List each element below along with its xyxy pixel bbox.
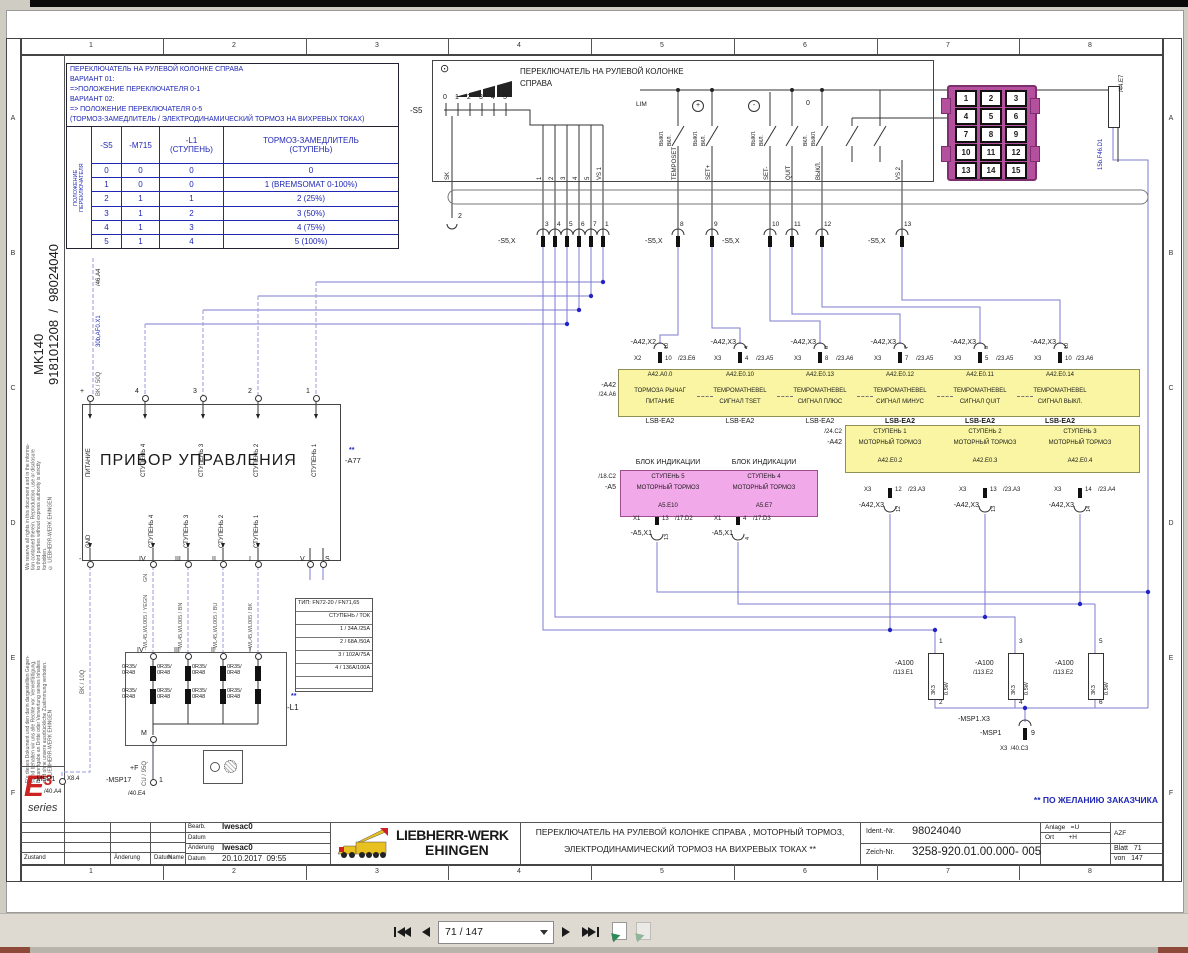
switch-ref: -S5: [410, 107, 422, 116]
channel-line1: СТУПЕНЬ 1: [845, 429, 935, 436]
plug-name: X2: [634, 356, 641, 363]
switch-box: [432, 60, 934, 182]
anlage-label: Anlage =U: [1045, 824, 1079, 831]
schematic-viewer-window: 1 2 3 4 5 6 7 8 1 2 3 4 5 6 7 8 A B C D …: [0, 0, 1188, 953]
connector-pin-grid: 1 2 3 4 5 6 7 8 9 10 11 12 13 14 15: [954, 90, 1028, 174]
datum-value: 20.10.2017 09:55: [222, 855, 287, 864]
table-cell: 0: [91, 163, 121, 177]
pin-label: +: [80, 388, 84, 396]
von-label: von 147: [1114, 855, 1143, 863]
ident-number: 98024040: [912, 825, 961, 837]
plug-pin-rot: 10: [664, 337, 670, 349]
ground-bolt-icon: [224, 760, 237, 773]
plug-pin: 10: [665, 356, 672, 363]
drawing-number: 3258-920.01.00.000- 005: [912, 846, 1041, 859]
next-page-button[interactable]: [558, 922, 574, 942]
bus-label: LSB-EA2: [620, 418, 700, 426]
rev-name: Name: [168, 855, 184, 862]
channel-line2: МОТОРНЫЙ ТОРМОЗ: [845, 440, 935, 447]
plug-pin: 13: [662, 516, 669, 523]
model-label: MK140: [32, 235, 47, 375]
previous-page-icon: [422, 927, 430, 937]
msp1-dev: -MSP1: [980, 730, 1001, 738]
channel-line1: ТОРМОЗА РЫЧАГ: [620, 388, 700, 395]
msp1x3-conn: -MSP1.X3: [958, 716, 990, 724]
conn-label: -A5,X1: [608, 530, 652, 538]
fuse-wire-name: 15b.F46.D1: [1098, 112, 1105, 170]
page-number-combobox[interactable]: 71 / 147: [438, 921, 554, 944]
a100-power: 0.5W: [944, 657, 950, 695]
type-table: ТИП: FN72-20 / FN71,65 СТУПЕНЬ / ТОК 1 /…: [295, 598, 373, 692]
last-page-button[interactable]: [579, 922, 601, 942]
fuse-symbol: [1108, 86, 1120, 128]
next-view-button[interactable]: [632, 920, 654, 944]
channel-line1: СТУПЕНЬ 5: [623, 474, 713, 481]
wire-xref: /46.A4: [96, 260, 103, 286]
wire-name: -WL45,WL005 / YEGN: [143, 578, 149, 650]
copyright-english: We reserve all rights in this document a…: [26, 360, 54, 570]
pin-number: 3: [545, 221, 549, 228]
conn-label: -A42,X2: [612, 339, 656, 347]
e3-logo-series: series: [28, 802, 57, 814]
liebherr-crane-logo: [334, 824, 392, 862]
a42m-ref: -A42: [822, 439, 842, 447]
plus-symbol: +: [692, 100, 704, 112]
lim-label: LIM: [636, 101, 647, 108]
fuse-xref: /44.E7: [1119, 58, 1126, 92]
channel-addr: A42.A0.0: [620, 372, 700, 379]
msp1-pin: X8.4: [67, 776, 79, 783]
msp17-ref: -MSP17: [106, 777, 131, 785]
terminal-label: IV: [137, 647, 144, 655]
a100-value: 3K3: [931, 657, 937, 695]
sheet-title-2: ЭЛЕКТРОДИНАМИЧЕСКИЙ ТОРМОЗ НА ВИХРЕВЫХ Т…: [524, 845, 856, 855]
off-label: ВЫКЛ.: [660, 114, 666, 146]
plus-f-label: +F: [130, 765, 138, 773]
a100-ref: -A100: [895, 660, 914, 668]
a100-xref: /113.E1: [893, 670, 913, 677]
previous-page-button[interactable]: [418, 922, 434, 942]
pin2-label: 2: [458, 213, 462, 221]
a5-ref: -A5: [596, 484, 616, 492]
aend-value: lwesac0: [222, 844, 253, 853]
wire-name: 30b,AF0.X1: [96, 289, 103, 347]
plug-name: X3: [864, 487, 871, 494]
variant-table-side-label: ПОЛОЖЕНИЕ ПЕРЕКЛЮЧАТЕЛЯ: [67, 127, 91, 248]
window-bottom-edge: [0, 947, 1188, 953]
zeich-label: Zeich-Nr.: [866, 849, 894, 857]
azf-label: AZF: [1114, 830, 1126, 837]
pin-function: ПИТАНИЕ: [86, 417, 93, 477]
channel-line2: ПИТАНИЕ: [620, 399, 700, 406]
ground-symbol-box: [203, 750, 243, 784]
ort-label: Ort +H: [1045, 834, 1077, 841]
bearb-value: lwesac0: [222, 823, 253, 832]
terminal-label: SK: [445, 150, 452, 180]
wire-spec: BK / 10Q: [80, 646, 87, 694]
rev-zustand: Zustand: [24, 855, 46, 862]
connector-pin: 1: [955, 90, 977, 107]
document-number: 918101208 / 98024040: [47, 150, 62, 385]
a42-ref: -A42: [596, 382, 616, 390]
minus-symbol: -: [748, 100, 760, 112]
previous-view-button[interactable]: [608, 920, 630, 944]
page-number-value: 71 / 147: [445, 926, 483, 938]
ground-screw-icon: [210, 762, 220, 772]
channel-addr: A5.E10: [623, 503, 713, 510]
conn-label: -A42,X3: [840, 502, 884, 510]
copyright-german: Für dieses Dokument und den darin darges…: [26, 588, 54, 783]
first-page-button[interactable]: [391, 922, 413, 942]
switch-title: ПЕРЕКЛЮЧАТЕЛЬ НА РУЛЕВОЙ КОЛОНКЕ: [520, 68, 684, 77]
control-unit-ref: -A77: [345, 457, 361, 465]
resistor-value: 0R35/ 0R48: [122, 664, 137, 676]
channel-addr: A42.E0.2: [845, 458, 935, 465]
connector-tab: [941, 98, 951, 114]
terminal-circle: [87, 395, 94, 402]
wire-spec: BK / 50Q: [96, 350, 103, 396]
type-table-row: ТИП: FN72-20 / FN71,65: [296, 599, 372, 612]
plug-xref: /23.A3: [908, 487, 925, 494]
plug-name: X1: [633, 516, 640, 523]
m-terminal-label: M: [141, 730, 147, 738]
blatt-label: Blatt 71: [1114, 845, 1142, 853]
msp1-xref: /40.A4: [44, 789, 61, 796]
rev-aenderung: Änderung: [114, 855, 140, 862]
first-page-icon: [394, 927, 396, 937]
variant-info-box: ПЕРЕКЛЮЧАТЕЛЬ НА РУЛЕВОЙ КОЛОНКЕ СПРАВА …: [66, 63, 399, 127]
switch-symbol-icon: ⊙: [440, 63, 449, 75]
a5-xref: /18.C2: [590, 474, 616, 481]
control-unit-box: [82, 404, 341, 561]
s5x-label: -S5,X: [498, 238, 516, 246]
indication-header: БЛОК ИНДИКАЦИИ: [623, 459, 713, 467]
msp17-xref: /40.E4: [128, 791, 145, 798]
zero-label: 0: [806, 100, 810, 108]
plug-pin: 12: [895, 487, 902, 494]
company-name-2: EHINGEN: [425, 843, 489, 859]
customer-note: ** ПО ЖЕЛАНИЮ ЗАКАЗЧИКА: [980, 796, 1158, 806]
customer-option-stars: **: [291, 693, 296, 701]
variant-table: ПОЛОЖЕНИЕ ПЕРЕКЛЮЧАТЕЛЯ -S5 -M715 -L1 (С…: [66, 126, 399, 249]
plug-xref: /23.E6: [678, 356, 695, 363]
msp17-pin: 1: [159, 777, 163, 785]
msp1-ref: -MSP1: [34, 776, 55, 784]
col-header: -S5: [91, 127, 121, 163]
info-line: ПЕРЕКЛЮЧАТЕЛЬ НА РУЛЕВОЙ КОЛОНКЕ СПРАВА: [70, 66, 243, 74]
channel-line2: МОТОРНЫЙ ТОРМОЗ: [623, 485, 713, 492]
next-page-icon: [562, 927, 570, 937]
switch-title2: СПРАВА: [520, 80, 552, 89]
plug-xref: /17.D2: [675, 516, 693, 523]
a42-xref: /24.A6: [590, 392, 616, 399]
l1-ref: -L1: [287, 704, 299, 713]
dropdown-arrow-icon[interactable]: [540, 930, 548, 935]
position-label: 0: [443, 94, 447, 102]
wire-spec: CU / 95Q: [142, 746, 149, 786]
bearb-label: Bearb.: [188, 824, 206, 831]
ident-label: Ident.-Nr.: [866, 828, 895, 836]
a42m-xref: /24.C2: [816, 429, 842, 436]
msp1x3-xref: X3 /40.C3: [1000, 746, 1028, 753]
customer-option-stars: **: [349, 447, 354, 455]
sheet-title-1: ПЕРЕКЛЮЧАТЕЛЬ НА РУЛЕВОЙ КОЛОНКЕ СПРАВА …: [524, 828, 856, 838]
msp1-pin9: 9: [1031, 730, 1035, 738]
